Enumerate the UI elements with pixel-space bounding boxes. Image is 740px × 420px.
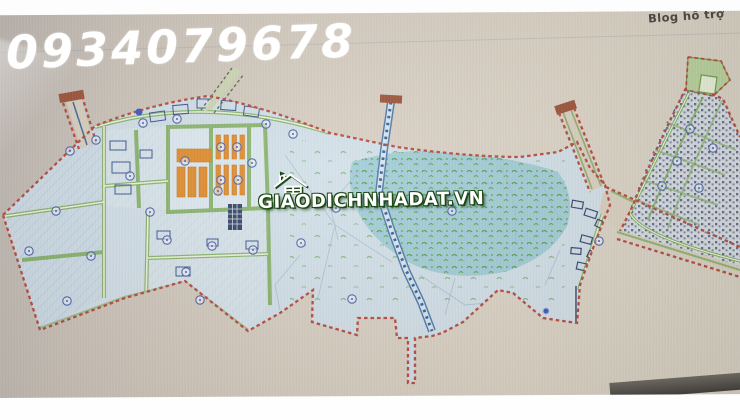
- blue-dot-marker: [543, 308, 549, 314]
- canal-cap: [380, 94, 402, 103]
- green-cap: [686, 57, 730, 96]
- vegetation-zone: [290, 140, 570, 305]
- blue-dot-marker: [136, 109, 143, 116]
- phone-watermark: 0934079678: [5, 16, 327, 78]
- left-parcel-zone: [3, 124, 104, 330]
- site-watermark: GIAODICHNHADAT.VN: [258, 167, 485, 213]
- south-parcel-zone: [148, 208, 270, 331]
- listing-photo: 0934079678 Blog hỗ trợ GIAODICHNHADAT.VN: [0, 0, 740, 420]
- site-watermark-text: GIAODICHNHADAT.VN: [258, 188, 484, 213]
- park-square: [699, 75, 717, 94]
- bottom-white-strip: [0, 394, 740, 420]
